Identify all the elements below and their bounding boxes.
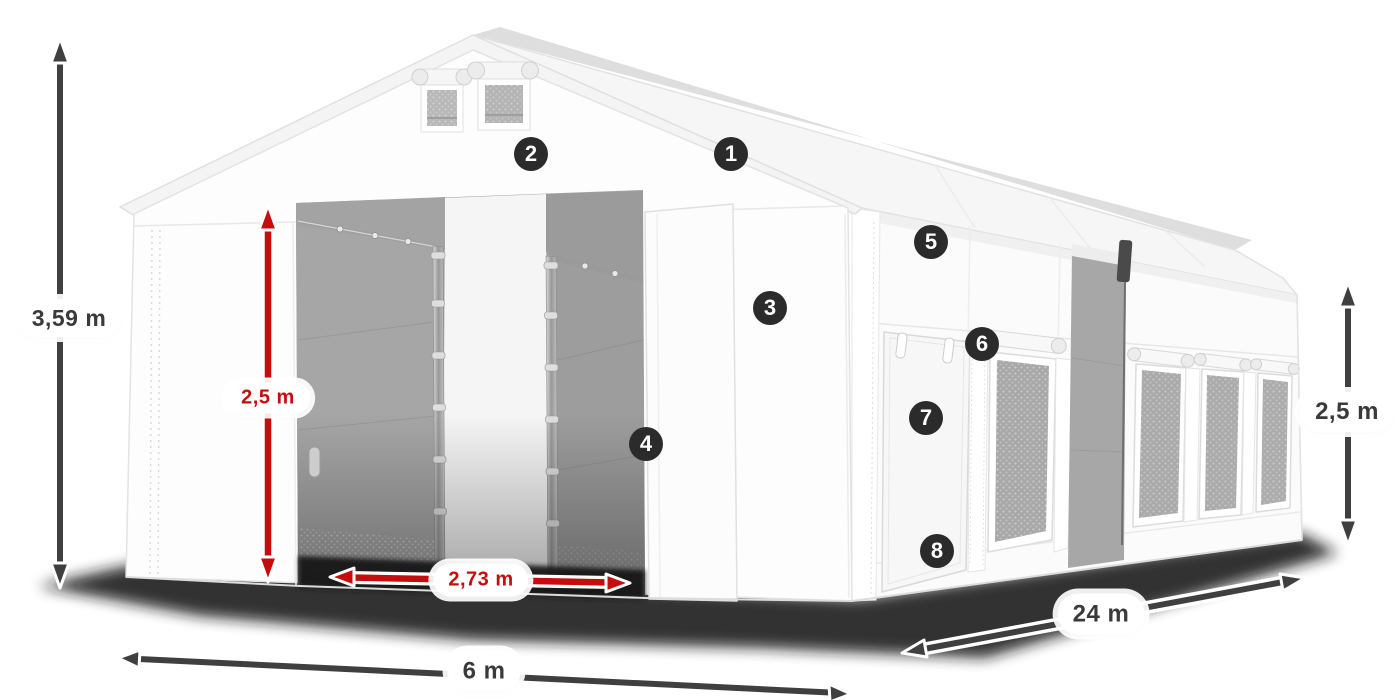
dimension-entrance-height: 2,5 m xyxy=(226,383,310,414)
part-marker-4: 4 xyxy=(629,427,663,461)
part-marker-3: 3 xyxy=(753,291,787,325)
door-handle xyxy=(309,447,320,477)
dimension-total-height: 3,59 m xyxy=(17,299,122,337)
dimension-side-height: 2,5 m xyxy=(1300,392,1394,432)
open-wall-section xyxy=(1068,240,1132,568)
part-marker-1: 1 xyxy=(714,137,748,171)
part-marker-5: 5 xyxy=(914,225,948,259)
dimension-entrance-width: 2,73 m xyxy=(433,564,528,597)
tent-dimensions-illustration: 3,59 m 2,5 m 2,73 m 6 m 24 m 2,5 m 1 2 3… xyxy=(0,0,1400,700)
tent-drawing xyxy=(0,0,1400,700)
front-entrance-interior xyxy=(296,190,645,600)
part-marker-8: 8 xyxy=(920,534,954,568)
dimension-width: 6 m xyxy=(448,651,521,692)
part-marker-7: 7 xyxy=(909,401,943,435)
dimension-length: 24 m xyxy=(1058,594,1145,635)
part-marker-2: 2 xyxy=(514,137,548,171)
front-door-right xyxy=(645,204,737,601)
part-marker-6: 6 xyxy=(965,327,999,361)
